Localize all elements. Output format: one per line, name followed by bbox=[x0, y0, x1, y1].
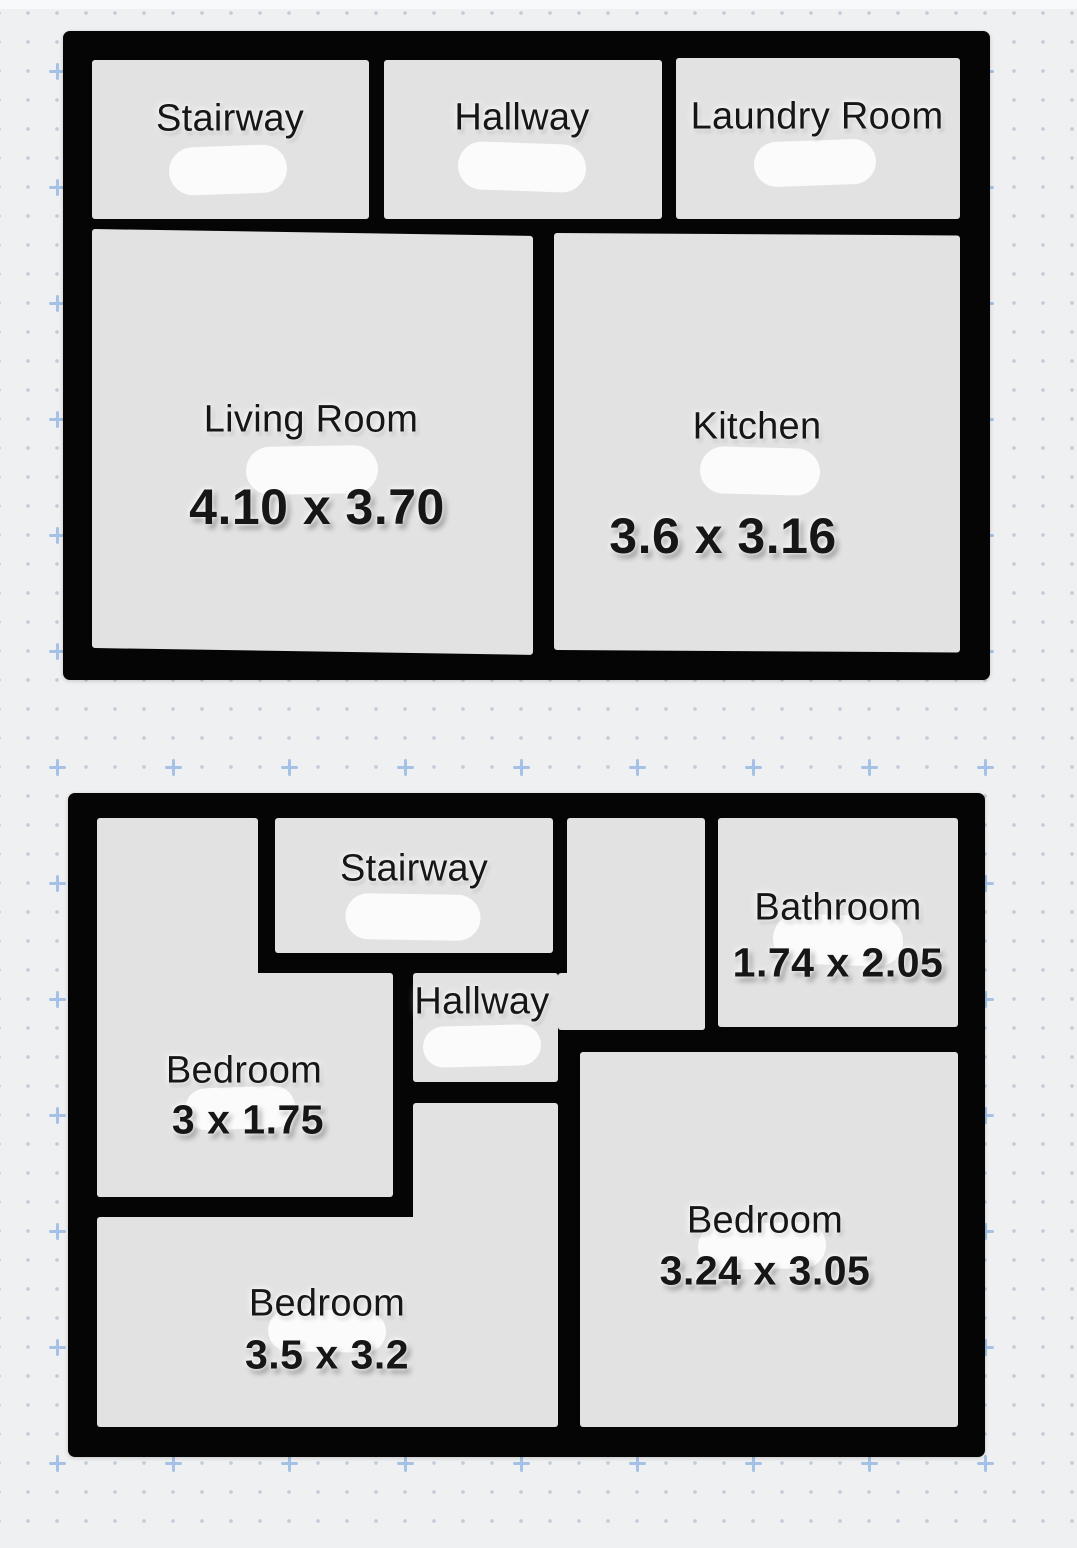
grid-plus-mark bbox=[513, 759, 530, 776]
erase-mark bbox=[184, 1085, 295, 1131]
room-laundry-room[interactable] bbox=[676, 58, 960, 219]
grid-plus-mark bbox=[861, 759, 878, 776]
canvas-top-edge bbox=[0, 0, 1077, 9]
erase-mark bbox=[698, 1222, 827, 1270]
grid-plus-mark bbox=[49, 1455, 66, 1472]
grid-plus-mark bbox=[977, 759, 994, 776]
grid-plus-mark bbox=[513, 1455, 530, 1472]
floor-plan-canvas: StairwayHallwayLaundry RoomLiving Room4.… bbox=[0, 0, 1077, 1548]
grid-plus-mark bbox=[745, 759, 762, 776]
grid-plus-mark bbox=[281, 759, 298, 776]
room-stairway[interactable] bbox=[92, 60, 369, 219]
room-hallway[interactable] bbox=[384, 60, 662, 219]
room-hallway[interactable] bbox=[558, 973, 705, 1030]
grid-plus-mark bbox=[281, 1455, 298, 1472]
erase-mark bbox=[345, 893, 481, 941]
room-bedroom-small[interactable] bbox=[97, 973, 393, 1197]
grid-plus-mark bbox=[49, 991, 66, 1008]
erase-mark bbox=[457, 141, 587, 193]
grid-plus-mark bbox=[629, 1455, 646, 1472]
erase-mark bbox=[422, 1024, 541, 1068]
grid-plus-mark bbox=[397, 759, 414, 776]
grid-plus-mark bbox=[165, 759, 182, 776]
grid-plus-mark bbox=[49, 875, 66, 892]
grid-plus-mark bbox=[977, 1455, 994, 1472]
erase-mark bbox=[772, 913, 904, 968]
grid-plus-mark bbox=[397, 1455, 414, 1472]
grid-plus-mark bbox=[49, 1339, 66, 1356]
grid-plus-mark bbox=[745, 1455, 762, 1472]
grid-plus-mark bbox=[165, 1455, 182, 1472]
grid-plus-mark bbox=[629, 759, 646, 776]
room-living-room[interactable] bbox=[92, 229, 533, 655]
grid-plus-mark bbox=[861, 1455, 878, 1472]
room-bedroom-bottom[interactable] bbox=[413, 1103, 558, 1223]
grid-plus-mark bbox=[49, 759, 66, 776]
grid-plus-mark bbox=[49, 1223, 66, 1240]
floor-plan-lower: Bedroom3 x 1.75StairwayHallwayBathroom1.… bbox=[68, 793, 985, 1457]
erase-mark bbox=[753, 138, 876, 187]
grid-plus-mark bbox=[49, 1107, 66, 1124]
erase-mark bbox=[699, 446, 820, 496]
erase-mark bbox=[168, 144, 288, 196]
erase-mark bbox=[268, 1309, 387, 1353]
erase-mark bbox=[246, 445, 379, 495]
floor-plan-upper: StairwayHallwayLaundry RoomLiving Room4.… bbox=[63, 31, 990, 680]
room-kitchen[interactable] bbox=[554, 233, 960, 652]
